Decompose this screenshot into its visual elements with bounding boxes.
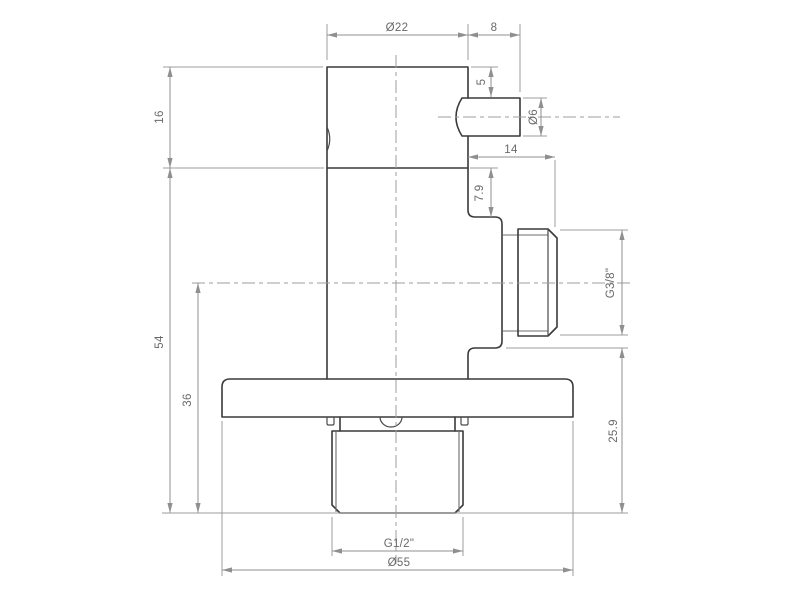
dim-side-outlet-bottom-height: 25.9	[506, 348, 628, 513]
inlet-thread-root-lines	[336, 432, 459, 512]
dim-label-spout-top-offset: 5	[476, 79, 488, 86]
valve-outline	[222, 67, 573, 513]
dim-label-spout-diameter: Ø6	[528, 109, 540, 125]
centerlines	[192, 55, 630, 564]
flange-tab-right	[461, 417, 468, 425]
flange-tab-left	[327, 417, 334, 425]
dim-spout-top-offset: 5	[471, 67, 498, 97]
angle-valve-drawing: Ø22 8 5 Ø6 14 7.9	[0, 0, 800, 603]
flange-outline	[222, 379, 573, 417]
inlet-thread-outline	[332, 431, 463, 513]
dim-head-height: 16	[154, 67, 324, 168]
extension-line	[332, 517, 463, 556]
valve-body-left-and-top-edge	[327, 67, 468, 379]
technical-drawing-page: Ø22 8 5 Ø6 14 7.9	[0, 0, 800, 603]
dim-label-side-outlet-top-offset: 7.9	[474, 185, 486, 202]
dim-label-outlet-axis-height: 36	[182, 393, 194, 406]
dim-label-side-outlet-thread: G3/8"	[605, 268, 617, 299]
seal-arc	[380, 417, 402, 427]
dim-side-outlet-top-offset: 7.9	[470, 168, 498, 217]
dim-label-body-height: 54	[154, 335, 166, 349]
valve-body-right-edge	[468, 136, 502, 379]
dim-label-head-height: 16	[154, 110, 166, 123]
dim-label-spout-length: 8	[491, 22, 498, 34]
dim-label-body-diameter: Ø22	[386, 22, 409, 34]
dim-label-flange-diameter: Ø55	[388, 557, 411, 569]
dim-body-height: 54	[154, 168, 170, 513]
dim-outlet-axis-height: 36	[182, 283, 198, 513]
dim-flange-diameter: Ø55	[222, 421, 573, 576]
dim-body-diameter: Ø22	[327, 22, 468, 60]
dim-label-side-outlet-bottom-height: 25.9	[608, 419, 620, 443]
inlet-neck-edges	[340, 417, 455, 431]
dim-inlet-thread: G1/2"	[332, 517, 463, 556]
extension-line	[163, 67, 324, 168]
dim-label-side-outlet-length: 14	[504, 144, 518, 156]
dim-label-inlet-thread: G1/2"	[384, 538, 415, 550]
extension-line	[222, 421, 573, 576]
